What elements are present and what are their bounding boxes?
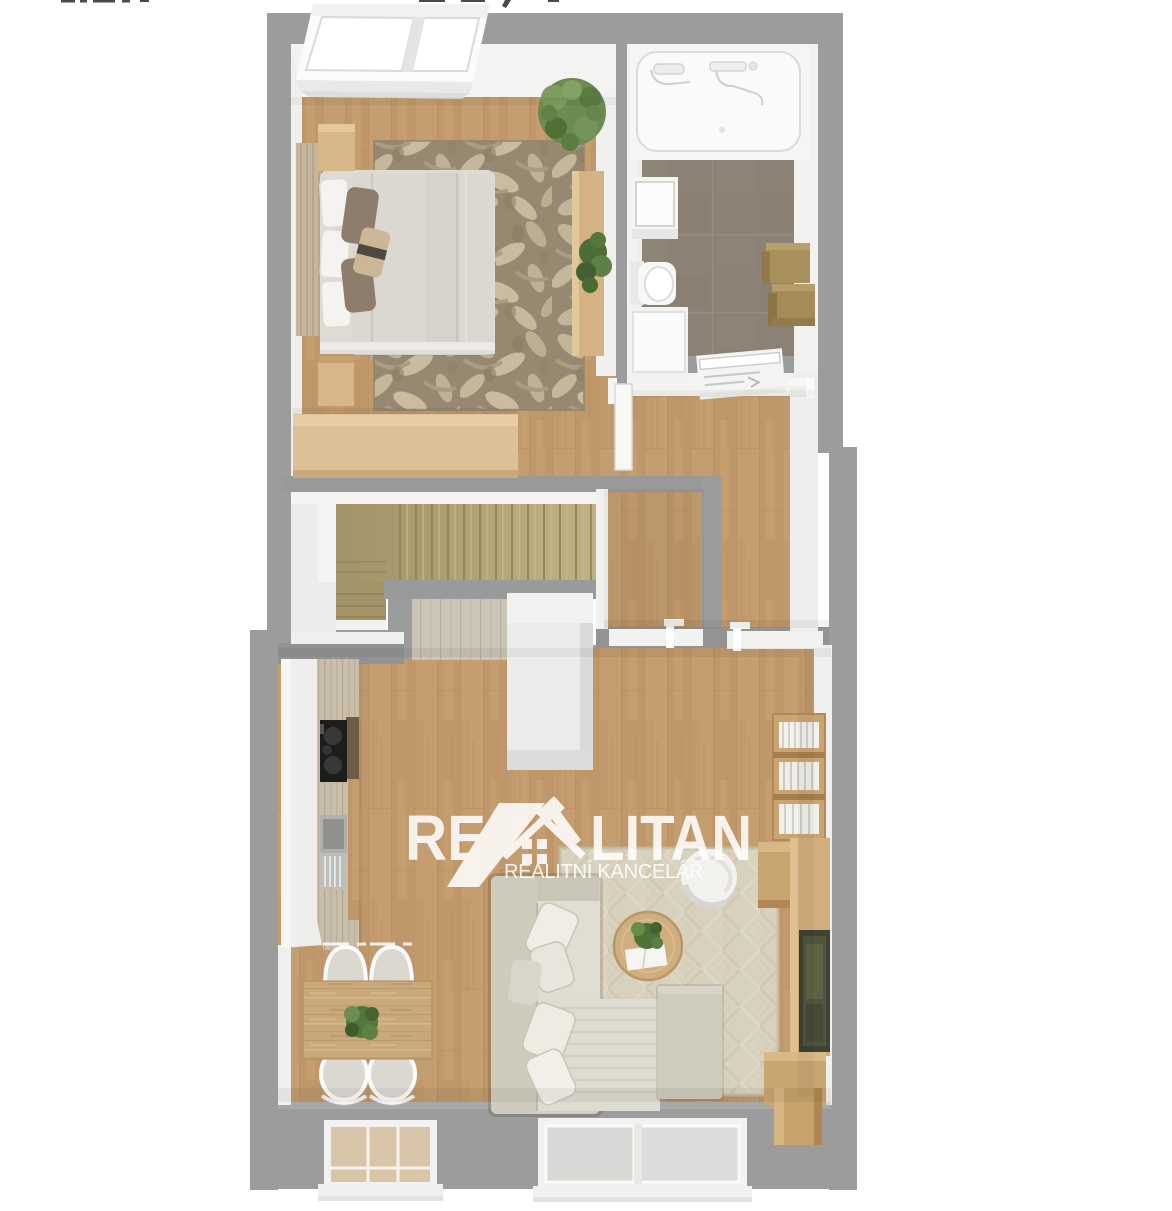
svg-text:REALITNÍ KANCELÁŘ: REALITNÍ KANCELÁŘ — [504, 860, 708, 883]
